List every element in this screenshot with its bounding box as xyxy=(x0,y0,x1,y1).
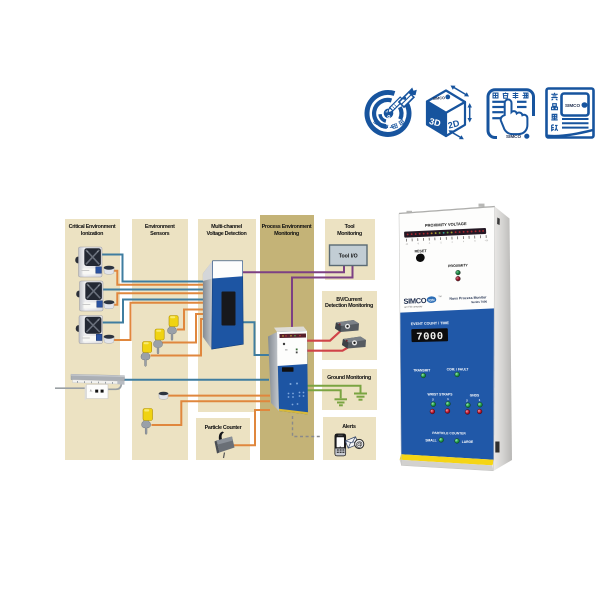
svg-text:SIMCO: SIMCO xyxy=(565,103,580,108)
svg-text:LARGE: LARGE xyxy=(462,440,474,444)
svg-text:GNDS: GNDS xyxy=(470,393,480,397)
svg-text:ION: ION xyxy=(428,298,435,302)
svg-text:SIMCO: SIMCO xyxy=(506,134,521,139)
svg-text:Series 7000: Series 7000 xyxy=(471,299,487,304)
svg-text:PARTICLE COUNTER: PARTICLE COUNTER xyxy=(432,431,466,436)
svg-text:SMALL: SMALL xyxy=(425,438,436,442)
svg-text:COM. / FAULT: COM. / FAULT xyxy=(447,367,469,371)
svg-text:RESET: RESET xyxy=(414,249,427,254)
svg-text:7000: 7000 xyxy=(416,331,444,344)
svg-text:WRIST STRAPS: WRIST STRAPS xyxy=(428,392,454,396)
svg-text:SIMCO: SIMCO xyxy=(432,96,445,101)
svg-text:TRANSMIT: TRANSMIT xyxy=(413,368,430,372)
svg-text:@: @ xyxy=(356,442,363,449)
svg-text:TM: TM xyxy=(438,296,441,298)
svg-text:Tool I/O: Tool I/O xyxy=(339,254,358,260)
svg-text:SIMCO: SIMCO xyxy=(403,296,427,306)
